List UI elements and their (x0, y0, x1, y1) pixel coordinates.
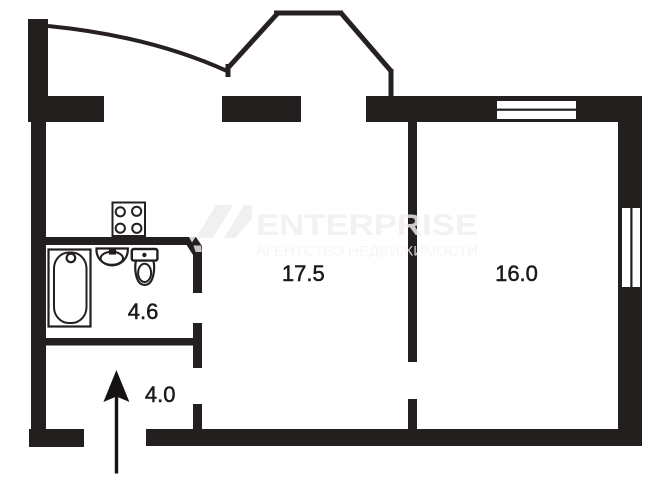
svg-text:17.5: 17.5 (282, 261, 325, 286)
svg-text:4.6: 4.6 (128, 299, 159, 324)
svg-text:ENTERPRISE: ENTERPRISE (256, 209, 478, 242)
svg-text:16.0: 16.0 (495, 261, 538, 286)
svg-text:АГЕНТСТВО НЕДВИЖИМОСТИ: АГЕНТСТВО НЕДВИЖИМОСТИ (256, 244, 478, 259)
svg-text:4.0: 4.0 (145, 382, 176, 407)
